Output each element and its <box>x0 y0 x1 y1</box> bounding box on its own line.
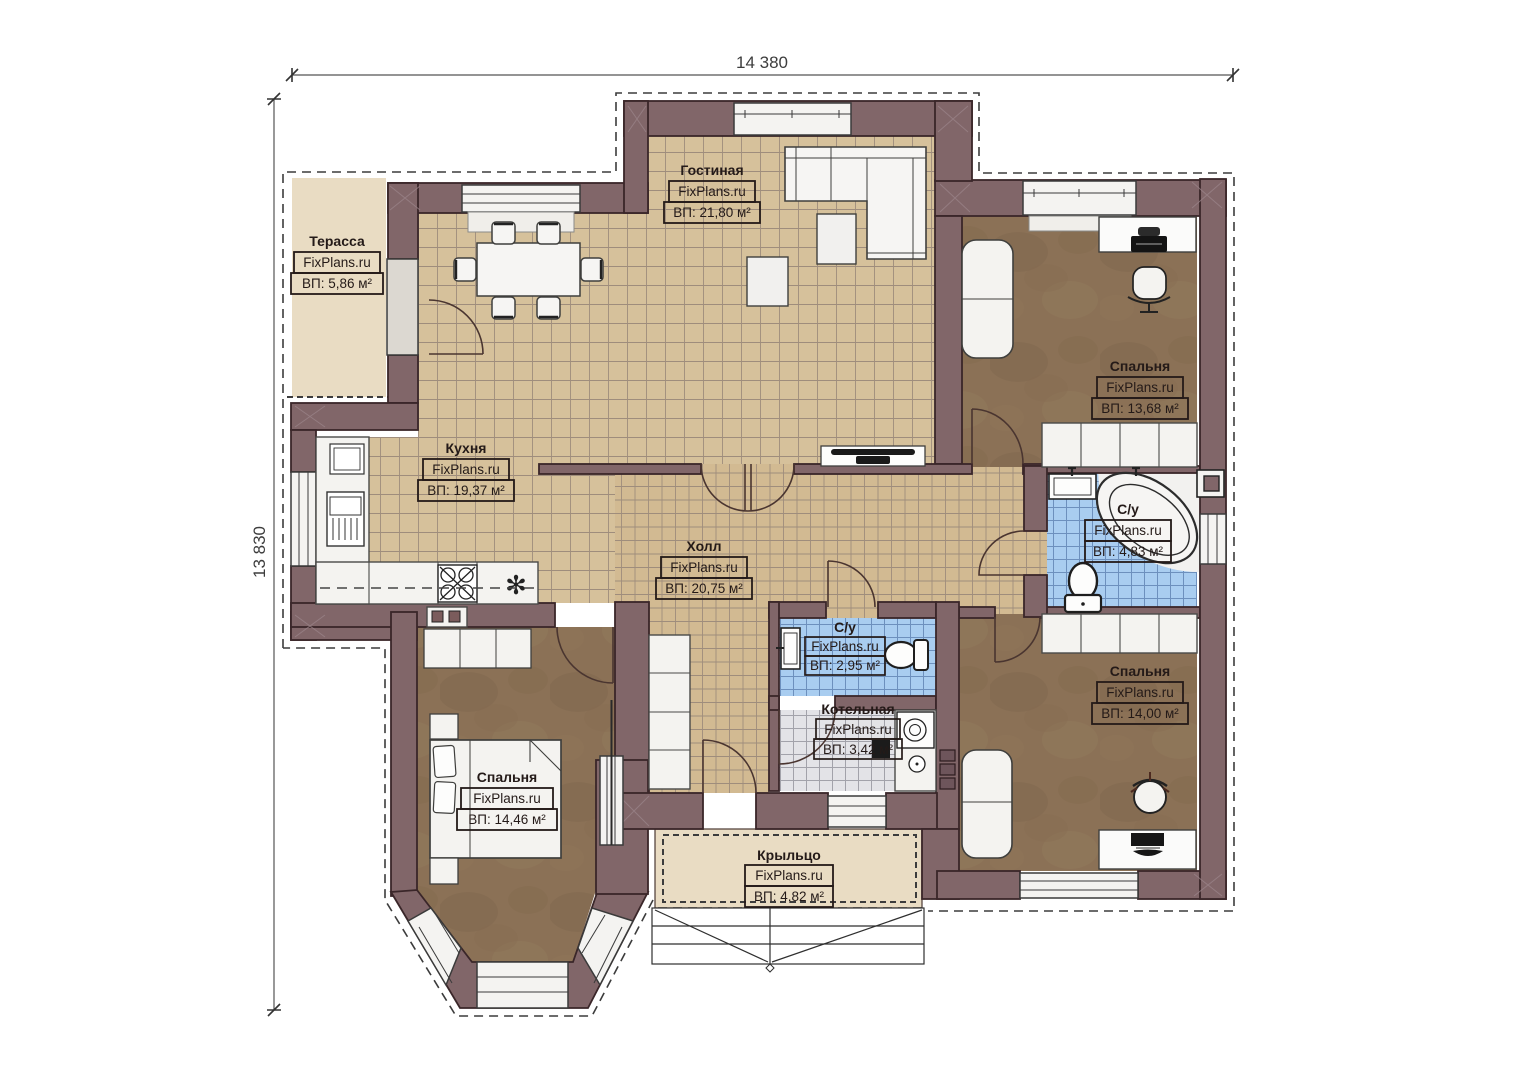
svg-text:Крыльцо: Крыльцо <box>757 847 821 863</box>
svg-text:FixPlans.ru: FixPlans.ru <box>303 255 371 270</box>
svg-text:✻: ✻ <box>505 570 527 600</box>
svg-text:FixPlans.ru: FixPlans.ru <box>811 639 879 654</box>
svg-text:Спальня: Спальня <box>1110 358 1170 374</box>
svg-text:ВП: 14,46 м²: ВП: 14,46 м² <box>468 812 546 827</box>
svg-text:Кухня: Кухня <box>446 440 487 456</box>
svg-text:ВП: 4,82 м²: ВП: 4,82 м² <box>754 889 825 904</box>
svg-text:FixPlans.ru: FixPlans.ru <box>670 560 738 575</box>
svg-text:14 380: 14 380 <box>736 53 788 72</box>
svg-text:13 830: 13 830 <box>250 526 269 578</box>
svg-text:FixPlans.ru: FixPlans.ru <box>1094 523 1162 538</box>
svg-text:Котельная: Котельная <box>821 701 894 717</box>
svg-text:FixPlans.ru: FixPlans.ru <box>473 791 541 806</box>
svg-text:Спальня: Спальня <box>1110 663 1170 679</box>
svg-text:Холл: Холл <box>686 538 721 554</box>
svg-text:FixPlans.ru: FixPlans.ru <box>1106 685 1174 700</box>
svg-text:ВП: 2,95 м²: ВП: 2,95 м² <box>810 658 881 673</box>
svg-text:ВП: 4,83 м²: ВП: 4,83 м² <box>1093 544 1164 559</box>
svg-text:Спальня: Спальня <box>477 769 537 785</box>
svg-text:ВП: 5,86 м²: ВП: 5,86 м² <box>302 276 373 291</box>
svg-text:ВП: 3,42 м²: ВП: 3,42 м² <box>823 742 894 757</box>
svg-text:FixPlans.ru: FixPlans.ru <box>432 462 500 477</box>
svg-text:ВП: 13,68 м²: ВП: 13,68 м² <box>1101 401 1179 416</box>
svg-text:ВП: 21,80 м²: ВП: 21,80 м² <box>673 205 751 220</box>
svg-text:ВП: 14,00 м²: ВП: 14,00 м² <box>1101 706 1179 721</box>
svg-text:FixPlans.ru: FixPlans.ru <box>755 868 823 883</box>
svg-text:FixPlans.ru: FixPlans.ru <box>824 722 892 737</box>
svg-text:Терасса: Терасса <box>309 233 365 249</box>
svg-text:FixPlans.ru: FixPlans.ru <box>678 184 746 199</box>
svg-text:ВП: 20,75 м²: ВП: 20,75 м² <box>665 581 743 596</box>
svg-text:С/у: С/у <box>1117 501 1139 517</box>
svg-text:ВП: 19,37 м²: ВП: 19,37 м² <box>427 483 505 498</box>
svg-text:С/у: С/у <box>834 619 856 635</box>
svg-text:Гостиная: Гостиная <box>680 162 743 178</box>
svg-text:FixPlans.ru: FixPlans.ru <box>1106 380 1174 395</box>
